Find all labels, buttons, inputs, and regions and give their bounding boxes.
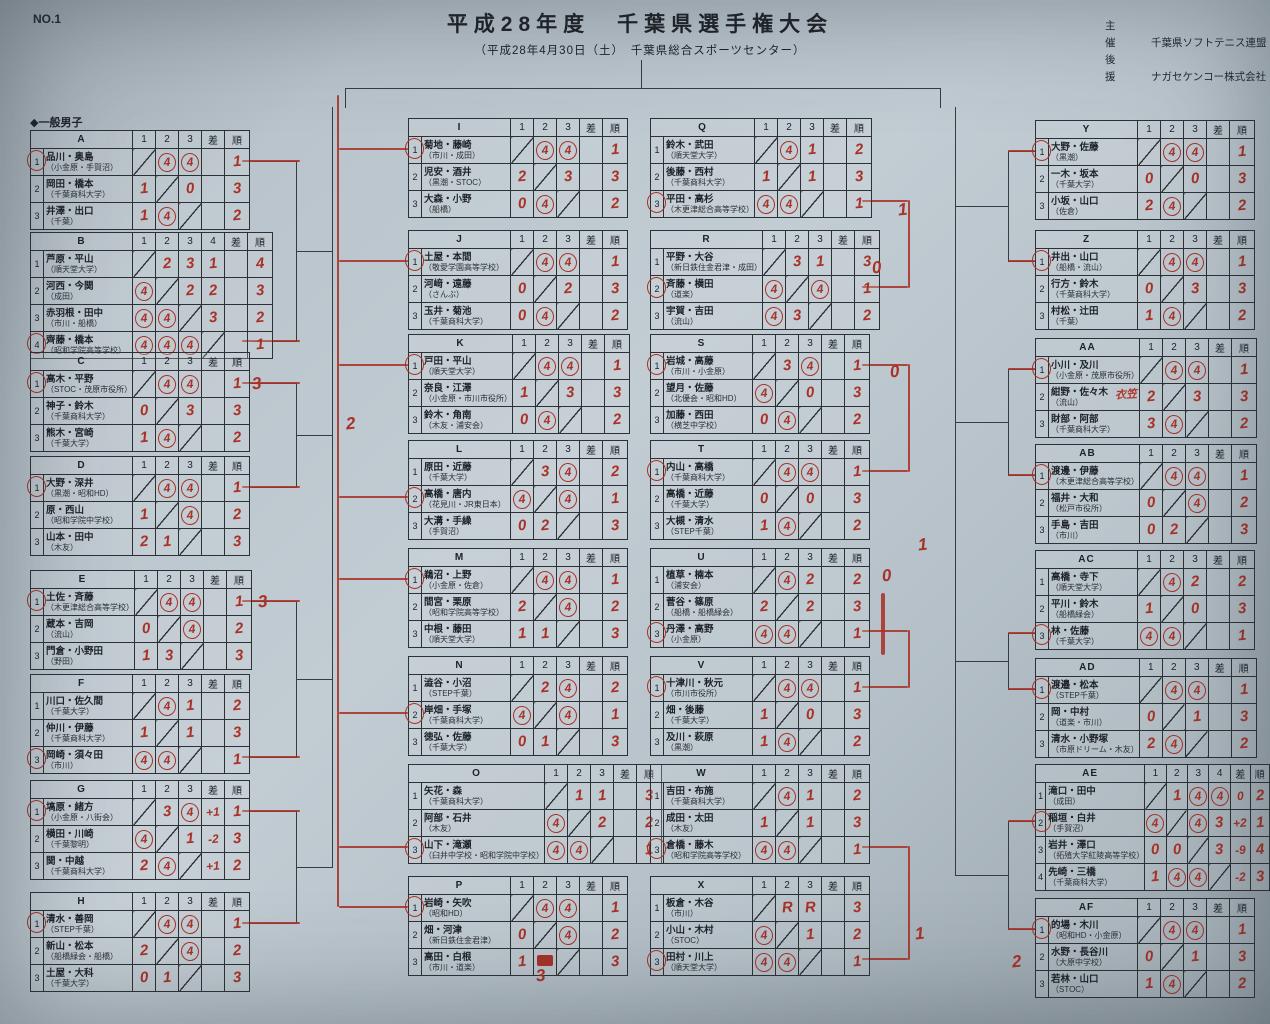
team-pair: 渡邊・伊藤 <box>1049 465 1139 477</box>
rank-value: 3 <box>852 490 862 508</box>
score-circled: 4 <box>134 829 154 849</box>
team-row: 3熊木・宮崎（千葉大学）142 <box>31 425 250 452</box>
game-diff-cell <box>580 276 603 303</box>
score-circled: 4 <box>157 374 177 394</box>
team-pair: 的場・木川 <box>1049 919 1137 931</box>
red-bracket-line <box>339 260 408 262</box>
score-value: 0 <box>1146 521 1156 539</box>
team-club: （黒潮） <box>664 743 752 753</box>
group-D: D123差順1大野・深井（黒潮・昭和HD）4412原・西山（昭和学院中学校）14… <box>30 456 250 556</box>
seed-number: 1 <box>31 919 43 929</box>
seed-number: 3 <box>31 537 43 547</box>
column-header: 3 <box>799 765 822 783</box>
team-pair: 岸畑・手塚 <box>422 704 510 716</box>
column-header: 差 <box>1207 231 1230 249</box>
rank-value: 1 <box>852 625 862 643</box>
column-header: 1 <box>511 119 534 137</box>
score-cell: 2 <box>511 164 534 191</box>
game-diff-cell <box>1207 193 1230 220</box>
rank-value: 1 <box>232 153 242 171</box>
seed-number: 1 <box>31 157 43 167</box>
team-club: （木更津総合高等学校） <box>1049 477 1139 487</box>
rank-cell: 2 <box>225 853 250 880</box>
team-pair: 斉藤・横田 <box>664 278 762 290</box>
rank-value: 2 <box>852 571 862 589</box>
score-cell <box>513 353 536 380</box>
team-pair: 小山・木村 <box>664 924 752 936</box>
group-P: P123差順1岩崎・矢吹（昭和HD）4412畑・河津（新日鉄住金君津）0423高… <box>408 876 628 976</box>
score-cell <box>799 621 822 648</box>
red-bracket-line <box>339 846 408 848</box>
team-row: 2望月・佐藤（北優会・昭和HD）403 <box>651 380 870 407</box>
score-value: 0 <box>1151 841 1161 859</box>
seed-number: 3 <box>651 521 663 531</box>
game-diff-cell <box>822 675 845 702</box>
team-row: 3丹澤・高野（小金原）441 <box>651 621 870 648</box>
team-club: （順天堂大学） <box>664 151 754 161</box>
red-bracket-line <box>242 160 300 162</box>
score-cell: 2 <box>133 529 156 556</box>
rank-value: 1 <box>232 375 242 393</box>
score-cell: 4 <box>557 567 580 594</box>
rank-cell: 1 <box>1230 139 1255 166</box>
team-row: 3赤羽根・田中（市川・船橋）4432 <box>31 305 273 332</box>
column-header: 3 <box>557 119 580 137</box>
score-cell <box>776 594 799 621</box>
group-K: K123差順1戸田・平山（順天堂大学）4412奈良・江澤（小金原・市川市役所）1… <box>408 334 630 434</box>
seed-number: 2 <box>31 406 43 416</box>
team-pair: 十津川・秋元 <box>664 677 752 689</box>
score-cell: 0 <box>753 407 776 434</box>
group-J: J123差順1土屋・本間（敬愛学園高等学校）4412河﨑・遠藤（さんぶ）0233… <box>408 230 628 330</box>
team-row: 3加藤・西田（横芝中学校）042 <box>651 407 870 434</box>
score-cell: 4 <box>1184 249 1207 276</box>
rank-value: 2 <box>852 411 862 429</box>
team-club: （昭和HD・小金原） <box>1049 931 1137 941</box>
seed-number: 1 <box>651 257 663 267</box>
game-diff-cell <box>1207 303 1230 330</box>
column-header: 1 <box>753 549 776 567</box>
team-pair: 齊藤・橋本 <box>44 334 132 346</box>
team-pair: 丹澤・高野 <box>664 623 752 635</box>
score-value: 1 <box>805 787 815 805</box>
rank-cell: 3 <box>603 164 628 191</box>
team-club: （市川市役所） <box>664 689 752 699</box>
column-header: 1 <box>511 877 534 895</box>
rank-cell: 2 <box>1230 569 1255 596</box>
seed-number: 2 <box>409 710 421 720</box>
score-cell: 1 <box>179 720 202 747</box>
score-value: 3 <box>1215 841 1225 859</box>
game-diff-cell <box>1207 139 1230 166</box>
score-cell <box>1161 944 1184 971</box>
score-cell <box>776 922 799 949</box>
team-club: （野田） <box>44 657 134 667</box>
score-cell <box>557 513 580 540</box>
rank-cell: 2 <box>248 305 273 332</box>
score-value: 1 <box>519 384 529 402</box>
column-header: 3 <box>591 765 614 783</box>
rank-cell: 3 <box>845 702 870 729</box>
column-header: 順 <box>225 353 250 371</box>
game-diff-cell <box>1209 384 1232 411</box>
rank-value: 2 <box>862 307 872 325</box>
score-cell: 1 <box>1138 596 1161 623</box>
column-header: 1 <box>1140 445 1163 463</box>
score-cell: 4 <box>133 826 156 853</box>
team-pair: 芦原・平山 <box>44 253 132 265</box>
score-cell: 2 <box>753 594 776 621</box>
handwritten-annotation: 3 <box>251 374 263 395</box>
game-diff-cell <box>580 675 603 702</box>
rank-cell: 1 <box>1230 623 1255 650</box>
group-letter: D <box>31 457 133 475</box>
column-header: 2 <box>1161 899 1184 917</box>
team-row: 3若林・山口（STOC）142 <box>1036 971 1255 998</box>
team-club: （昭和HD） <box>422 909 510 919</box>
seed-number: 1 <box>31 259 43 269</box>
score-cell: 4 <box>1186 357 1209 384</box>
team-row: 1鵜沼・上野（小金原・佐倉）441 <box>409 567 628 594</box>
rank-cell: 2 <box>1230 193 1255 220</box>
game-diff-cell <box>202 747 225 774</box>
team-pair: 渡邉・松本 <box>1049 679 1139 691</box>
score-cell: 4 <box>1186 463 1209 490</box>
column-header: 1 <box>1138 231 1161 249</box>
score-cell: 4 <box>1161 303 1184 330</box>
score-cell: 3 <box>1209 810 1230 837</box>
column-header: 3 <box>557 549 580 567</box>
organizer-block: 主 催千葉県ソフトテニス連盟 後 援ナガセケンコー株式会社 <box>1105 18 1267 86</box>
column-header: 3 <box>179 893 202 911</box>
column-header: 順 <box>225 131 250 149</box>
team-pair: 成田・太田 <box>664 812 752 824</box>
score-circled: 4 <box>1164 734 1184 754</box>
rank-cell: 3 <box>847 164 872 191</box>
score-value: 0 <box>805 490 815 508</box>
rank-cell: 1 <box>603 249 628 276</box>
team-row: 3関・中越（千葉商科大学）24+12 <box>31 853 250 880</box>
team-club: （STEP千葉） <box>44 925 132 935</box>
score-cell: 4 <box>534 191 557 218</box>
team-club: （千葉商科大学） <box>1049 290 1137 300</box>
rank-cell: 1 <box>1232 463 1257 490</box>
score-cell <box>557 949 580 976</box>
score-cell <box>511 675 534 702</box>
rank-value: 2 <box>852 733 862 751</box>
team-club: （昭和学院中学校） <box>44 516 132 526</box>
column-header: 1 <box>753 441 776 459</box>
rank-value: 1 <box>852 679 862 697</box>
team-club: （道楽・市川） <box>1049 718 1139 728</box>
seed-number: 3 <box>651 415 663 425</box>
score-cell <box>179 305 202 332</box>
group-I: I123差順1菊地・藤崎（市川・成田）4412児安・酒井（黒潮・STOC）233… <box>408 118 628 218</box>
score-cell: 0 <box>1140 517 1163 544</box>
score-cell <box>557 621 580 648</box>
score-cell: 2 <box>133 938 156 965</box>
team-club: （市川） <box>1049 531 1139 541</box>
seed-number: 1 <box>1036 577 1048 587</box>
team-row: 3小坂・山口（佐倉）242 <box>1036 193 1255 220</box>
game-diff-cell: 0 <box>1230 783 1250 810</box>
team-row: 1原田・近藤（千葉大学）342 <box>409 459 628 486</box>
score-circled: 4 <box>558 678 578 698</box>
printed-bracket-line <box>296 251 333 252</box>
rank-cell: 2 <box>225 938 250 965</box>
team-club: （手賀沼） <box>422 527 510 537</box>
rank-value: 1 <box>232 751 242 769</box>
seed-number: 2 <box>409 172 421 182</box>
score-cell: 2 <box>799 594 822 621</box>
rank-cell: 3 <box>225 398 250 425</box>
rank-value: 3 <box>234 647 244 665</box>
score-cell <box>179 747 202 774</box>
page-number: NO.1 <box>33 12 61 26</box>
team-row: 1川口・佐久間（千葉大学）412 <box>31 693 250 720</box>
printed-bracket-line <box>345 88 940 89</box>
seed-number: 1 <box>31 807 43 817</box>
score-circled: 4 <box>754 925 774 945</box>
rank-cell: 2 <box>845 567 870 594</box>
score-circled: 4 <box>182 619 202 639</box>
game-diff-cell <box>582 380 605 407</box>
score-cell: 4 <box>776 783 799 810</box>
score-value: 1 <box>139 180 149 198</box>
column-header: 順 <box>603 231 628 249</box>
score-cell: 4 <box>1186 490 1209 517</box>
seed-number: 3 <box>1036 739 1048 749</box>
game-diff-cell <box>580 513 603 540</box>
seed-number: 2 <box>651 710 663 720</box>
team-pair: 土屋・本間 <box>422 251 510 263</box>
handwritten-annotation: 0 <box>871 258 883 279</box>
column-header: 差 <box>202 781 225 799</box>
score-cell: 3 <box>179 398 202 425</box>
team-club: （小金原・手賀沼） <box>44 163 132 173</box>
game-diff-cell <box>822 949 845 976</box>
group-A: A123差順1品川・奥島（小金原・手賀沼）4412岡田・橋本（千葉商科大学）10… <box>30 130 250 230</box>
column-header: 3 <box>1184 231 1207 249</box>
group-letter: R <box>651 231 763 249</box>
score-value: 0 <box>1146 494 1156 512</box>
column-header: 順 <box>603 549 628 567</box>
column-header: 1 <box>511 657 534 675</box>
team-pair: 河﨑・遠藤 <box>422 278 510 290</box>
rank-cell: 3 <box>1230 166 1255 193</box>
score-value: 1 <box>807 141 817 159</box>
red-bracket-line <box>339 578 408 580</box>
team-row: 2福井・大和（松戸市役所）042 <box>1036 490 1257 517</box>
score-cell: 1 <box>133 502 156 529</box>
score-cell: 1 <box>753 513 776 540</box>
team-row: 1岩城・高藤（市川・小金原）341 <box>651 353 870 380</box>
seed-number: 2 <box>31 184 43 194</box>
score-cell <box>776 702 799 729</box>
team-club: （順天堂大学） <box>44 265 132 275</box>
column-header: 順 <box>845 877 870 895</box>
score-cell: 4 <box>557 675 580 702</box>
game-diff-value: -2 <box>1234 870 1246 885</box>
score-cell: 4 <box>1163 357 1186 384</box>
column-header: 2 <box>1163 445 1186 463</box>
score-circled: 4 <box>1162 572 1182 592</box>
score-cell: 4 <box>179 938 202 965</box>
team-pair: 林・佐藤 <box>1049 625 1137 637</box>
column-header: 2 <box>1161 551 1184 569</box>
column-header: 順 <box>855 231 880 249</box>
column-header: 順 <box>603 441 628 459</box>
rank-value: 2 <box>232 942 242 960</box>
column-header: 2 <box>778 119 801 137</box>
score-cell: 2 <box>591 810 614 837</box>
score-cell: 4 <box>536 353 559 380</box>
game-diff-cell: -9 <box>1230 837 1250 864</box>
team-row: 1渡邊・伊藤（木更津総合高等学校）441 <box>1036 463 1257 490</box>
rank-value: 1 <box>610 706 620 724</box>
column-header: 2 <box>534 231 557 249</box>
score-cell: 3 <box>158 643 181 670</box>
rank-value: 3 <box>1237 280 1247 298</box>
score-circled: 4 <box>810 279 830 299</box>
score-cell <box>545 783 568 810</box>
score-value: 0 <box>519 411 529 429</box>
score-circled: 4 <box>558 570 578 590</box>
team-club: （千葉大学） <box>1049 180 1137 190</box>
group-letter: B <box>31 233 133 251</box>
column-header: 順 <box>1230 899 1255 917</box>
handwritten-annotation: 2 <box>1011 952 1023 973</box>
team-club: （佐倉） <box>1049 207 1137 217</box>
column-header: 3 <box>1184 121 1207 139</box>
team-club: （流山） <box>664 317 762 327</box>
game-diff-cell <box>580 922 603 949</box>
rank-cell: 2 <box>603 191 628 218</box>
column-header: 2 <box>1163 339 1186 357</box>
group-letter: W <box>651 765 753 783</box>
score-cell: 0 <box>799 702 822 729</box>
team-pair: 阿部・石井 <box>422 812 544 824</box>
seed-number: 3 <box>1036 419 1048 429</box>
rank-cell: 3 <box>603 621 628 648</box>
score-value: 2 <box>1144 197 1154 215</box>
score-cell: 4 <box>156 305 179 332</box>
group-M: M123差順1鵜沼・上野（小金原・佐倉）4412間宮・栗原（昭和学院高等学校）2… <box>408 548 628 648</box>
score-cell: 4 <box>557 249 580 276</box>
score-circled: 4 <box>800 462 820 482</box>
game-diff-cell <box>822 513 845 540</box>
seed-number: 1 <box>1036 257 1048 267</box>
score-cell <box>753 783 776 810</box>
team-club: （STEP千葉） <box>422 689 510 699</box>
score-circled: 4 <box>754 840 774 860</box>
score-cell: 4 <box>179 371 202 398</box>
game-diff-cell <box>582 407 605 434</box>
group-Y: Y123差順1大野・佐藤（黒潮）4412一木・坂本（千葉大学）0033小坂・山口… <box>1035 120 1255 220</box>
column-header: 順 <box>605 335 630 353</box>
seed-number: 1 <box>1036 365 1048 375</box>
team-pair: 児安・酒井 <box>422 166 510 178</box>
score-value: 2 <box>805 571 815 589</box>
team-row: 2後藤・西村（千葉商科大学）113 <box>651 164 872 191</box>
team-row: 1的場・木川（昭和HD・小金原）441 <box>1036 917 1255 944</box>
score-cell <box>1166 810 1187 837</box>
score-value: 2 <box>1146 388 1156 406</box>
seed-number: 1 <box>651 361 663 371</box>
team-pair: 植草・楠本 <box>664 569 752 581</box>
column-header: 2 <box>776 657 799 675</box>
team-pair: 田村・川上 <box>664 951 752 963</box>
column-header: 3 <box>1185 659 1208 677</box>
game-diff-cell <box>824 137 847 164</box>
column-header: 2 <box>156 353 179 371</box>
team-pair: 行方・鈴木 <box>1049 278 1137 290</box>
score-circled: 4 <box>180 505 200 525</box>
score-value: 0 <box>517 926 527 944</box>
rank-cell: 3 <box>603 949 628 976</box>
score-circled: 4 <box>180 914 200 934</box>
team-row: 2原・西山（昭和学院中学校）142 <box>31 502 250 529</box>
column-header: 3 <box>1184 899 1207 917</box>
score-circled: 4 <box>777 840 797 860</box>
game-diff-cell <box>580 729 603 756</box>
column-header: 2 <box>534 549 557 567</box>
rank-cell: 2 <box>1232 411 1257 438</box>
team-row: 3中根・藤田（順天堂大学）113 <box>409 621 628 648</box>
group-letter: AB <box>1036 445 1140 463</box>
score-circled: 4 <box>157 750 177 770</box>
group-O: O123差順1矢花・森（千葉商科大学）1132阿部・石井（木友）4223山下・滝… <box>408 764 662 864</box>
score-cell <box>753 459 776 486</box>
column-header: 順 <box>603 877 628 895</box>
score-cell: 4 <box>133 305 156 332</box>
group-E: E123差順1土佐・斉藤（木更津総合高等学校）4412蔵本・吉岡（流山）0423… <box>30 570 252 670</box>
column-header: 2 <box>156 893 179 911</box>
game-diff-cell <box>822 567 845 594</box>
game-diff-cell: -2 <box>1230 864 1250 891</box>
team-pair: 宇賀・吉田 <box>664 305 762 317</box>
game-diff-value: 0 <box>1236 789 1244 804</box>
team-pair: 平田・高杉 <box>664 193 754 205</box>
score-cell: 4 <box>133 278 156 305</box>
rank-cell: 1 <box>855 276 880 303</box>
seed-number: 1 <box>1036 925 1048 935</box>
score-cell: 1 <box>156 965 179 992</box>
score-value: 2 <box>540 679 550 697</box>
score-value: 1 <box>807 168 817 186</box>
score-cell: 1 <box>801 137 824 164</box>
printed-bracket-line <box>345 88 346 108</box>
score-cell <box>786 276 809 303</box>
seed-number: 2 <box>31 624 43 634</box>
game-diff-cell <box>1208 704 1231 731</box>
score-cell: 4 <box>158 589 181 616</box>
column-header: 差 <box>204 571 227 589</box>
team-row: 1鈴木・武田（順天堂大学）412 <box>651 137 872 164</box>
team-club: （敬愛学園高等学校） <box>422 263 510 273</box>
team-row: 2高橋・近藤（千葉大学）003 <box>651 486 870 513</box>
team-pair: 岩崎・矢吹 <box>422 897 510 909</box>
score-cell: 4 <box>181 616 204 643</box>
score-cell: 2 <box>1139 731 1162 758</box>
team-row: 1芦原・平山（順天堂大学）2314 <box>31 251 273 278</box>
score-cell <box>753 353 776 380</box>
score-value: 1 <box>139 429 149 447</box>
seed-number: 1 <box>31 597 43 607</box>
rank-cell: 1 <box>227 589 252 616</box>
team-pair: 塙原・緒方 <box>44 801 132 813</box>
score-cell <box>1185 731 1208 758</box>
